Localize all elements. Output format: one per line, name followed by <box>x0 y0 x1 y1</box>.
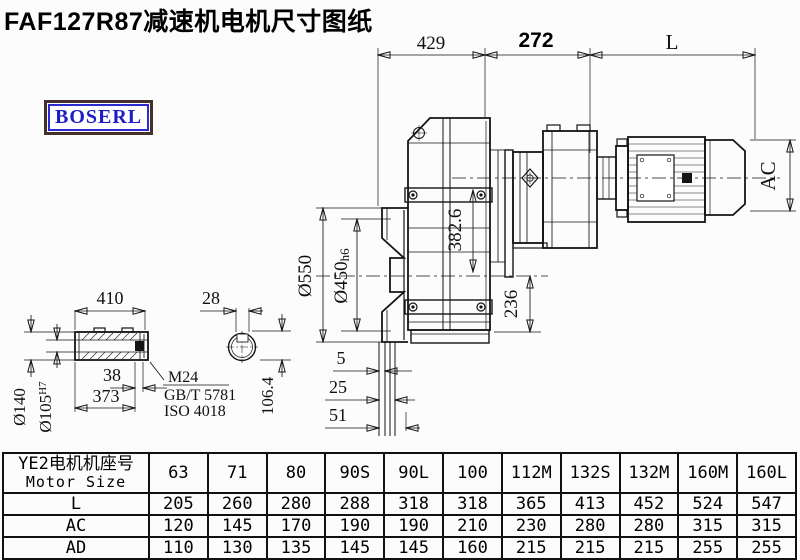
row-label: AD <box>3 537 149 559</box>
cell: 110 <box>149 537 208 559</box>
dim-L: L <box>666 30 679 54</box>
cell: 145 <box>208 515 267 537</box>
table-row-L: L 205 260 280 288 318 318 365 413 452 52… <box>3 493 796 515</box>
cell: 190 <box>325 515 384 537</box>
shaft-end-view <box>226 331 258 363</box>
col-header: 112M <box>502 453 561 493</box>
cell: 130 <box>208 537 267 559</box>
cell: 170 <box>267 515 326 537</box>
cell: 524 <box>678 493 737 515</box>
cell: 318 <box>384 493 443 515</box>
row-label: L <box>3 493 149 515</box>
col-header: 160M <box>678 453 737 493</box>
dimension-drawing: 429 272 L Ø550 Ø450h6 382.6 236 5 25 <box>0 0 800 455</box>
dim-382-6: 382.6 <box>445 209 466 252</box>
dim-106-4: 106.4 <box>258 376 277 415</box>
cell: 547 <box>737 493 796 515</box>
dim-dia550: Ø550 <box>295 255 316 297</box>
col-header: 160L <box>737 453 796 493</box>
col-header: 90L <box>384 453 443 493</box>
standard-iso: ISO 4018 <box>164 403 226 420</box>
dim-dia140: Ø140 <box>10 388 29 426</box>
cell: 190 <box>384 515 443 537</box>
cell: 230 <box>502 515 561 537</box>
motor-size-table: YE2电机机座号 Motor Size 63 71 80 90S 90L 100… <box>2 452 797 560</box>
cell: 145 <box>384 537 443 559</box>
col-header: 63 <box>149 453 208 493</box>
cell: 120 <box>149 515 208 537</box>
col-header: 100 <box>443 453 502 493</box>
dim-dia105H7: Ø105H7 <box>36 381 55 433</box>
shaft-dimensions: 410 28 Ø140 Ø105H7 38 373 106.4 M24 GB/T <box>10 288 291 433</box>
cell: 255 <box>737 537 796 559</box>
table-row-AD: AD 110 130 135 145 145 160 215 215 215 2… <box>3 537 796 559</box>
dim-51: 51 <box>329 405 347 425</box>
cell: 452 <box>620 493 679 515</box>
dim-429: 429 <box>417 33 446 54</box>
header-en: Motor Size <box>4 474 148 491</box>
cell: 318 <box>443 493 502 515</box>
flange-offset-dimensions: 5 25 51 <box>325 342 420 436</box>
standard-gb: GB/T 5781 <box>164 387 236 404</box>
cell: 280 <box>620 515 679 537</box>
cell: 255 <box>678 537 737 559</box>
dim-25: 25 <box>329 377 347 397</box>
col-header: 90S <box>325 453 384 493</box>
col-header: 71 <box>208 453 267 493</box>
cell: 135 <box>267 537 326 559</box>
dim-272: 272 <box>518 29 553 52</box>
table-header-motor-size: YE2电机机座号 Motor Size <box>3 453 149 493</box>
cell: 160 <box>443 537 502 559</box>
dim-373: 373 <box>93 386 120 406</box>
dim-38: 38 <box>103 365 121 385</box>
cell: 145 <box>325 537 384 559</box>
section-hatch <box>82 333 137 359</box>
gear-unit-outline <box>490 125 616 277</box>
cell: 215 <box>502 537 561 559</box>
cell: 413 <box>561 493 620 515</box>
cell: 280 <box>561 515 620 537</box>
cell: 210 <box>443 515 502 537</box>
dim-AC: AC <box>756 161 780 190</box>
cell: 288 <box>325 493 384 515</box>
dim-28: 28 <box>202 288 220 308</box>
col-header: 132S <box>561 453 620 493</box>
hollow-shaft-detail <box>75 328 148 360</box>
cell: 260 <box>208 493 267 515</box>
cell: 205 <box>149 493 208 515</box>
table-header-row: YE2电机机座号 Motor Size 63 71 80 90S 90L 100… <box>3 453 796 493</box>
cell: 280 <box>267 493 326 515</box>
motor-ac-dimension: AC <box>750 140 796 211</box>
cell: 365 <box>502 493 561 515</box>
dim-236: 236 <box>501 290 522 319</box>
dim-5: 5 <box>337 348 346 368</box>
cell: 215 <box>561 537 620 559</box>
fan-cover <box>705 140 745 215</box>
cell: 215 <box>620 537 679 559</box>
output-flange-outline <box>382 208 408 342</box>
cell: 315 <box>678 515 737 537</box>
col-header: 132M <box>620 453 679 493</box>
col-header: 80 <box>267 453 326 493</box>
row-label: AC <box>3 515 149 537</box>
header-cn: YE2电机机座号 <box>4 455 148 474</box>
thread-callout: M24 <box>168 369 198 386</box>
cell: 315 <box>737 515 796 537</box>
dim-410: 410 <box>97 288 124 308</box>
table-row-AC: AC 120 145 170 190 190 210 230 280 280 3… <box>3 515 796 537</box>
